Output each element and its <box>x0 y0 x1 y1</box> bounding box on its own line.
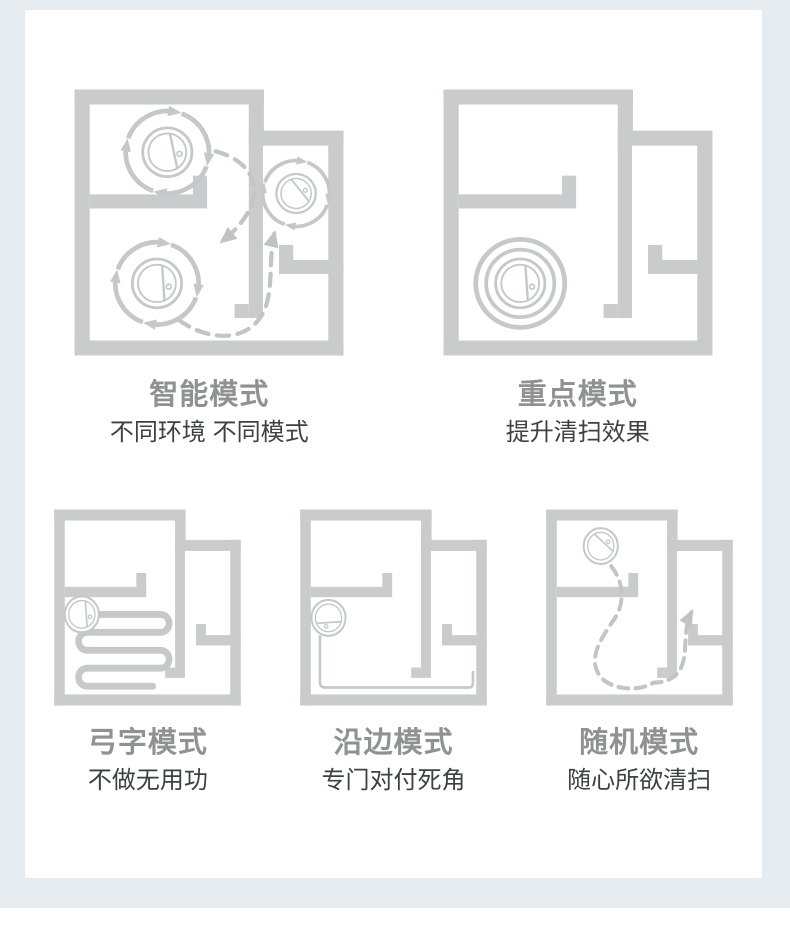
robot-vacuum <box>311 600 345 636</box>
mode-title: 随机模式 <box>567 727 711 760</box>
robot-travel-dashed-path <box>216 151 254 241</box>
robot-vacuum-spot-cleaning <box>476 239 565 327</box>
mode-subtitle: 不同环境 不同模式 <box>110 419 309 448</box>
mode-title: 弓字模式 <box>88 727 208 760</box>
mode-title: 智能模式 <box>110 379 309 412</box>
mode-random: 随机模式 随心所欲清扫 <box>516 504 762 796</box>
robot-vacuum-icon <box>269 166 324 220</box>
page-bottom-whitespace <box>0 908 790 934</box>
mode-zigzag: 弓字模式 不做无用功 <box>25 504 271 796</box>
floorplan-walls <box>75 89 344 355</box>
robot-vacuum-rotating <box>259 156 334 230</box>
mode-title: 重点模式 <box>506 379 650 412</box>
floorplan-walls <box>546 510 732 706</box>
spot-mode-floorplan-diagram <box>436 82 720 363</box>
mode-subtitle: 提升清扫效果 <box>506 419 650 448</box>
mode-smart: 智能模式 不同环境 不同模式 <box>25 82 394 448</box>
robot-vacuum-icon <box>495 259 544 308</box>
edge-mode-floorplan-diagram <box>295 504 492 711</box>
mode-edge: 沿边模式 专门对付死角 <box>271 504 517 796</box>
smart-mode-floorplan-diagram <box>67 82 351 363</box>
robot-vacuum-rotating <box>110 237 204 330</box>
mode-title: 沿边模式 <box>322 727 466 760</box>
mode-subtitle: 不做无用功 <box>88 767 208 796</box>
robot-vacuum-icon <box>311 600 345 636</box>
robot-vacuum-icon <box>140 125 196 180</box>
mode-subtitle: 专门对付死角 <box>322 767 466 796</box>
robot-vacuum-icon <box>65 597 99 633</box>
robot-vacuum-icon <box>133 259 182 308</box>
mode-spot: 重点模式 提升清扫效果 <box>394 82 763 448</box>
top-mode-row: 智能模式 不同环境 不同模式 重点模式 提升清扫效果 <box>25 82 762 448</box>
bottom-mode-row: 弓字模式 不做无用功 沿边模式 专门对付死角 <box>25 504 762 796</box>
robot-vacuum-icon <box>576 521 624 572</box>
cleaning-modes-section: 智能模式 不同环境 不同模式 重点模式 提升清扫效果 <box>0 0 790 908</box>
content-card: 智能模式 不同环境 不同模式 重点模式 提升清扫效果 <box>25 10 762 878</box>
floorplan-walls <box>443 89 712 355</box>
robot-vacuum <box>65 597 99 633</box>
mode-subtitle: 随心所欲清扫 <box>567 767 711 796</box>
zigzag-mode-floorplan-diagram <box>49 504 246 711</box>
robot-vacuum <box>576 521 624 572</box>
random-mode-floorplan-diagram <box>541 504 738 711</box>
